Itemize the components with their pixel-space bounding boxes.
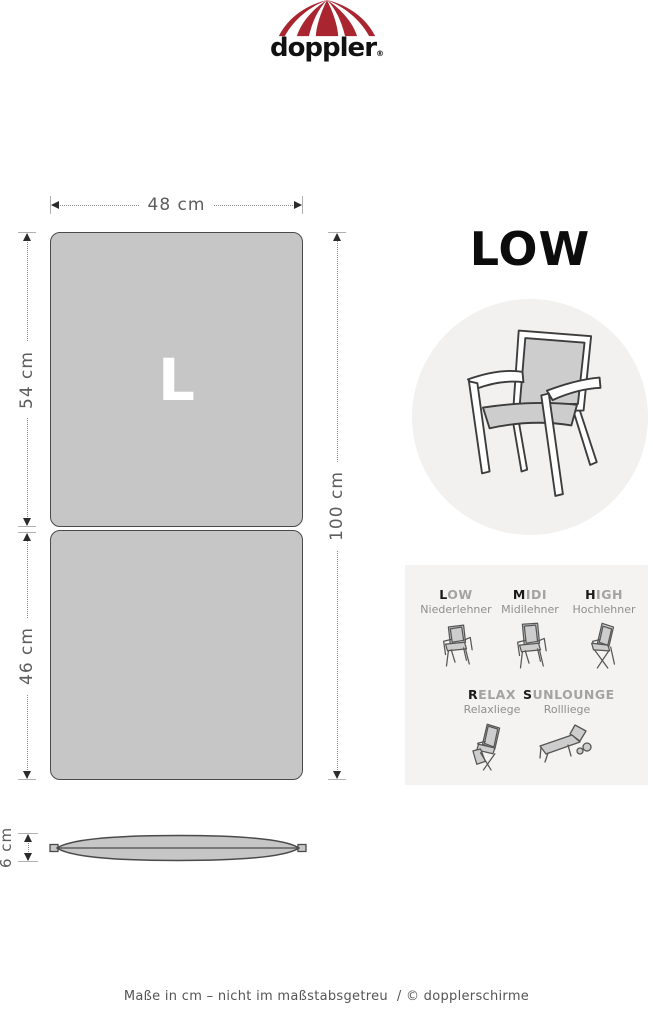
lower-length-dimension: 46 cm	[18, 532, 36, 780]
lower-length-label: 46 cm	[17, 618, 37, 694]
registered-mark: ®	[376, 49, 384, 58]
chair-type-title: MIDI	[492, 587, 568, 602]
measure-note: Maße in cm – nicht im maßstabsgetreu	[124, 989, 388, 1004]
armchair-midi-icon	[511, 622, 549, 672]
chair-type-title: SUNLOUNGE	[523, 687, 611, 702]
total-length-label: 100 cm	[327, 462, 347, 550]
arrow-up-icon	[24, 834, 32, 842]
doppler-logo: doppler®	[266, 0, 388, 61]
thickness-label: 6 cm	[0, 833, 16, 862]
chair-type-subtitle: Niederlehner	[418, 603, 494, 616]
arrow-up-icon	[23, 533, 31, 541]
armchair-high-icon	[585, 622, 623, 674]
chair-type-midi: MIDI Midilehner	[492, 587, 568, 672]
arrow-down-icon	[24, 853, 32, 861]
low-back-armchair-icon	[436, 313, 624, 521]
copyright-text: © dopplerschirme	[406, 989, 529, 1004]
arrow-up-icon	[23, 233, 31, 241]
cushion-lower-section	[50, 530, 303, 780]
logo-brand-text: doppler	[270, 33, 376, 63]
arrow-left-icon	[51, 201, 59, 209]
size-letter: L	[158, 351, 195, 409]
chair-type-subtitle: Relaxliege	[452, 703, 532, 716]
chair-type-title: RELAX	[452, 687, 532, 702]
tick-mark	[18, 779, 36, 780]
cushion-side-view	[49, 833, 307, 863]
chair-type-subtitle: Rollliege	[523, 703, 611, 716]
upper-length-dimension: 54 cm	[18, 232, 36, 527]
sunlounger-icon	[538, 722, 596, 764]
chair-type-subtitle: Hochlehner	[566, 603, 642, 616]
chair-illustration-circle	[412, 299, 648, 535]
armchair-low-icon	[437, 622, 475, 670]
width-label: 48 cm	[139, 195, 215, 215]
recliner-icon	[472, 722, 512, 776]
arrow-right-icon	[294, 201, 302, 209]
umbrella-icon	[275, 0, 379, 37]
tick-mark	[302, 196, 303, 214]
cushion-upper-section: L	[50, 232, 303, 527]
arrow-down-icon	[23, 771, 31, 779]
width-dimension: 48 cm	[50, 196, 303, 214]
total-length-dimension: 100 cm	[328, 232, 346, 780]
chair-type-subtitle: Midilehner	[492, 603, 568, 616]
chair-type-sunlounge: SUNLOUNGE Rollliege	[523, 687, 611, 764]
tick-mark	[18, 861, 38, 862]
arrow-down-icon	[23, 518, 31, 526]
tick-mark	[18, 526, 36, 527]
chair-type-low: LOW Niederlehner	[418, 587, 494, 670]
tick-mark	[328, 779, 346, 780]
chair-type-high: HIGH Hochlehner	[566, 587, 642, 674]
chair-type-title: LOW	[418, 587, 494, 602]
arrow-up-icon	[333, 233, 341, 241]
type-heading: LOW	[412, 222, 648, 276]
upper-length-label: 54 cm	[17, 342, 37, 418]
logo-wordmark: doppler®	[266, 35, 388, 61]
chair-types-panel: LOW Niederlehner MIDI Midilehner	[405, 565, 648, 785]
arrow-down-icon	[333, 771, 341, 779]
chair-type-relax: RELAX Relaxliege	[452, 687, 532, 776]
chair-type-title: HIGH	[566, 587, 642, 602]
thickness-dimension	[18, 833, 38, 862]
footer-note: Maße in cm – nicht im maßstabsgetreu / ©…	[0, 989, 653, 1004]
